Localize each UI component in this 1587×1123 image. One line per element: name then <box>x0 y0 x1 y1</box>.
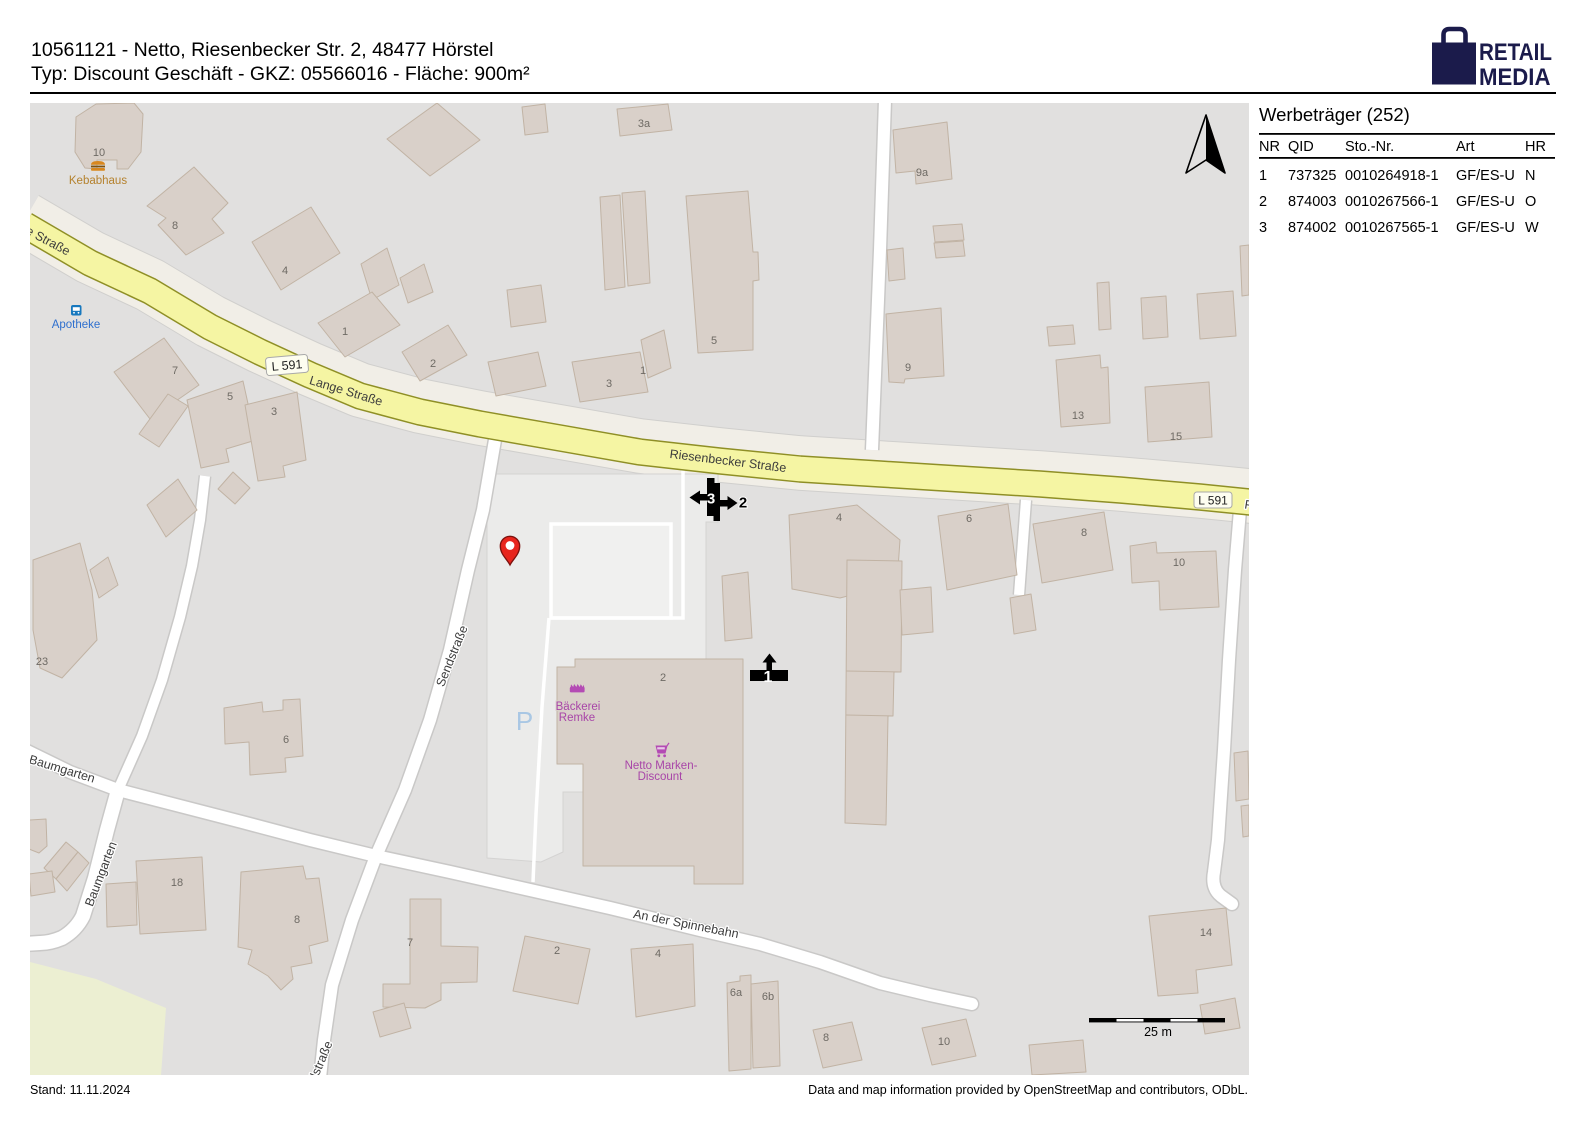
svg-text:RETAIL: RETAIL <box>1479 39 1552 66</box>
svg-text:13: 13 <box>1072 410 1084 422</box>
svg-text:10: 10 <box>93 147 105 159</box>
svg-text:0010264918-1: 0010264918-1 <box>1345 168 1439 184</box>
svg-text:15: 15 <box>1170 431 1182 443</box>
svg-text:QID: QID <box>1288 139 1314 155</box>
svg-text:2: 2 <box>1259 194 1267 210</box>
svg-text:10: 10 <box>1173 557 1185 569</box>
svg-text:6b: 6b <box>762 991 774 1003</box>
svg-text:Discount: Discount <box>638 771 684 783</box>
svg-text:8: 8 <box>294 914 300 926</box>
svg-text:25 m: 25 m <box>1144 1025 1172 1039</box>
svg-text:1: 1 <box>764 669 773 686</box>
svg-text:5: 5 <box>711 335 717 347</box>
svg-text:GF/ES-U: GF/ES-U <box>1456 194 1515 210</box>
svg-text:7: 7 <box>172 365 178 377</box>
svg-text:Art: Art <box>1456 139 1475 155</box>
svg-text:4: 4 <box>282 265 288 277</box>
svg-text:2: 2 <box>430 358 436 370</box>
svg-text:7: 7 <box>407 937 413 949</box>
svg-text:Kebabhaus: Kebabhaus <box>69 175 127 187</box>
svg-text:GF/ES-U: GF/ES-U <box>1456 168 1515 184</box>
svg-text:1: 1 <box>1259 168 1267 184</box>
svg-text:6a: 6a <box>730 987 743 999</box>
svg-text:14: 14 <box>1200 927 1212 939</box>
svg-text:L 591: L 591 <box>1198 494 1228 508</box>
svg-text:N: N <box>1525 168 1535 184</box>
svg-text:18: 18 <box>171 877 183 889</box>
svg-text:2: 2 <box>554 945 560 957</box>
svg-text:L 591: L 591 <box>271 357 303 374</box>
svg-text:Remke: Remke <box>559 712 595 724</box>
svg-text:1: 1 <box>342 326 348 338</box>
svg-text:NR: NR <box>1259 139 1280 155</box>
svg-text:874003: 874003 <box>1288 194 1336 210</box>
svg-text:4: 4 <box>655 948 661 960</box>
svg-text:9a: 9a <box>916 167 929 179</box>
svg-text:3: 3 <box>1259 220 1267 236</box>
svg-text:HR: HR <box>1525 139 1546 155</box>
svg-text:0010267566-1: 0010267566-1 <box>1345 194 1439 210</box>
svg-text:5: 5 <box>227 391 233 403</box>
svg-text:8: 8 <box>172 220 178 232</box>
svg-text:MEDIA: MEDIA <box>1479 64 1551 91</box>
svg-text:2: 2 <box>660 672 666 684</box>
svg-text:O: O <box>1525 194 1536 210</box>
svg-text:874002: 874002 <box>1288 220 1336 236</box>
svg-text:8: 8 <box>1081 527 1087 539</box>
svg-text:4: 4 <box>836 512 842 524</box>
svg-text:GF/ES-U: GF/ES-U <box>1456 220 1515 236</box>
svg-text:P: P <box>516 706 533 736</box>
svg-text:W: W <box>1525 220 1539 236</box>
svg-text:23: 23 <box>36 656 48 668</box>
svg-text:0010267565-1: 0010267565-1 <box>1345 220 1439 236</box>
svg-text:6: 6 <box>966 513 972 525</box>
svg-text:8: 8 <box>823 1032 829 1044</box>
svg-text:3a: 3a <box>638 118 651 130</box>
svg-text:10: 10 <box>938 1036 950 1048</box>
svg-text:9: 9 <box>905 362 911 374</box>
svg-text:6: 6 <box>283 734 289 746</box>
svg-text:1: 1 <box>640 365 646 377</box>
svg-text:737325: 737325 <box>1288 168 1336 184</box>
svg-text:2: 2 <box>739 495 747 512</box>
svg-text:3: 3 <box>271 406 277 418</box>
svg-text:3: 3 <box>606 378 612 390</box>
svg-text:Sto.-Nr.: Sto.-Nr. <box>1345 139 1394 155</box>
svg-text:Apotheke: Apotheke <box>52 319 101 331</box>
svg-text:3: 3 <box>707 491 715 508</box>
